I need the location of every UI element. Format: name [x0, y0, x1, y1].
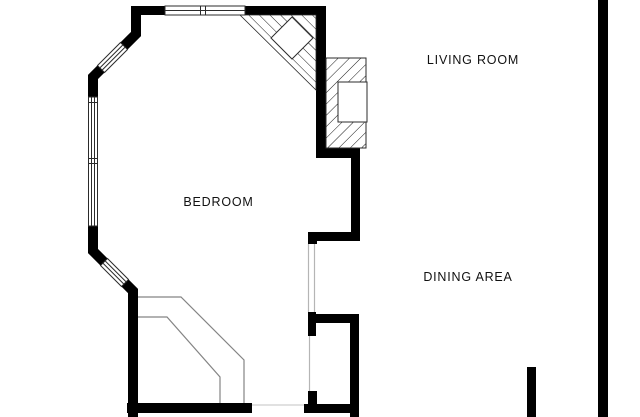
room-label-living-room: LIVING ROOM [427, 53, 519, 67]
wall-closet-bottom [304, 404, 358, 413]
floor-plan: BEDROOM LIVING ROOM DINING AREA [0, 0, 640, 417]
fireplace-firebox [338, 82, 367, 122]
wall-passage-stub [308, 232, 317, 244]
wall-closet-right [350, 314, 359, 417]
wall-bedroom-bottom [127, 403, 252, 413]
window-bay-left [89, 97, 98, 226]
wall-bedroom-right [316, 6, 326, 158]
wall-fireplace-right [351, 148, 360, 240]
wall-dining-stub [527, 367, 536, 417]
room-label-bedroom: BEDROOM [183, 195, 253, 209]
wall-right-exterior [598, 0, 608, 417]
room-label-dining-area: DINING AREA [423, 270, 512, 284]
window-top [165, 6, 245, 15]
wall-fireplace-bottom [316, 148, 352, 158]
